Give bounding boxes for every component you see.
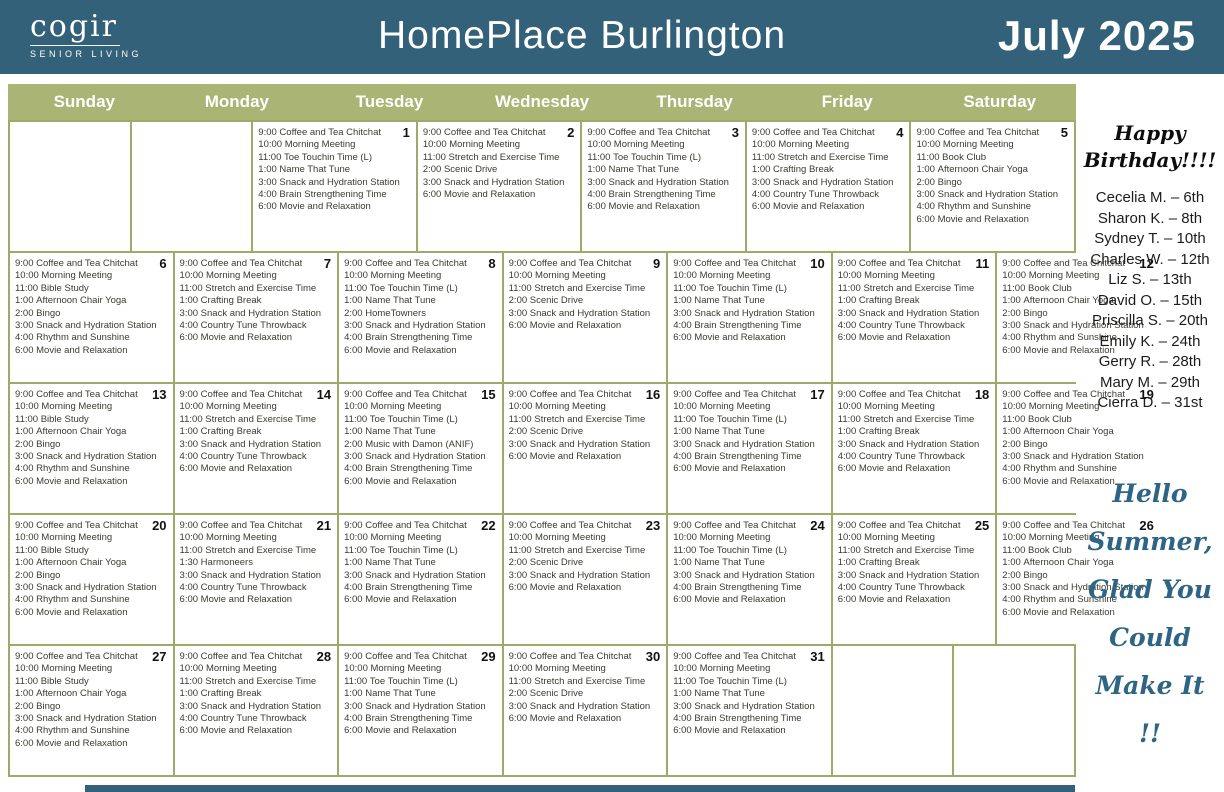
event-item: 2:00 Scenic Drive <box>423 164 565 176</box>
event-item: 1:00 Crafting Break <box>180 688 322 700</box>
event-item: 1:00 Name That Tune <box>587 164 729 176</box>
event-item: 3:00 Snack and Hydration Station <box>180 701 322 713</box>
event-time: 4:00 <box>838 451 857 462</box>
event-item: 3:00 Snack and Hydration Station <box>587 177 729 189</box>
event-name: Snack and Hydration Station <box>198 439 321 450</box>
event-name: Toe Touchin Time (L) <box>696 414 787 425</box>
day-cell-11: 119:00 Coffee and Tea Chitchat10:00 Morn… <box>833 253 998 382</box>
event-time: 6:00 <box>344 594 363 605</box>
event-item: 6:00 Movie and Relaxation <box>15 476 157 488</box>
event-name: Stretch and Exercise Time <box>861 283 975 294</box>
event-name: Movie and Relaxation <box>198 594 292 605</box>
event-item: 3:00 Snack and Hydration Station <box>258 177 400 189</box>
event-time: 10:00 <box>673 663 697 674</box>
event-name: Country Tune Throwback <box>198 582 307 593</box>
event-item: 6:00 Movie and Relaxation <box>916 214 1058 226</box>
event-time: 3:00 <box>673 308 692 319</box>
event-item: 9:00 Coffee and Tea Chitchat <box>673 520 815 532</box>
event-time: 4:00 <box>15 332 34 343</box>
event-name: Crafting Break <box>198 688 261 699</box>
event-time: 3:00 <box>673 570 692 581</box>
event-time: 4:00 <box>587 189 606 200</box>
event-item: 1:00 Name That Tune <box>344 295 486 307</box>
app-header: cogir SENIOR LIVING HomePlace Burlington… <box>0 0 1224 74</box>
day-cell-22: 229:00 Coffee and Tea Chitchat10:00 Morn… <box>339 515 504 644</box>
event-time: 11:00 <box>180 676 203 687</box>
event-item: 6:00 Movie and Relaxation <box>673 463 815 475</box>
event-item: 9:00 Coffee and Tea Chitchat <box>673 258 815 270</box>
event-time: 9:00 <box>838 520 857 531</box>
week-row: 279:00 Coffee and Tea Chitchat10:00 Morn… <box>10 644 1074 775</box>
event-item: 10:00 Morning Meeting <box>838 270 980 282</box>
event-name: Snack and Hydration Station <box>692 308 815 319</box>
event-item: 9:00 Coffee and Tea Chitchat <box>15 520 157 532</box>
event-list: 9:00 Coffee and Tea Chitchat10:00 Mornin… <box>668 646 831 740</box>
event-time: 9:00 <box>180 651 199 662</box>
event-name: Snack and Hydration Station <box>198 308 321 319</box>
event-time: 3:00 <box>15 713 34 724</box>
event-time: 1:00 <box>838 295 857 306</box>
event-name: Name That Tune <box>692 688 765 699</box>
weekday-header: Wednesday <box>466 84 619 120</box>
event-time: 10:00 <box>15 401 39 412</box>
event-name: Morning Meeting <box>940 139 1013 150</box>
event-item: 2:00 Scenic Drive <box>509 557 651 569</box>
event-name: Coffee and Tea Chitchat <box>606 127 710 138</box>
event-time: 1:00 <box>344 295 363 306</box>
event-item: 10:00 Morning Meeting <box>752 139 894 151</box>
event-time: 9:00 <box>344 520 363 531</box>
event-time: 9:00 <box>15 520 34 531</box>
event-item: 10:00 Morning Meeting <box>916 139 1058 151</box>
event-name: Bible Study <box>38 676 89 687</box>
event-time: 6:00 <box>180 594 199 605</box>
event-name: Morning Meeting <box>368 401 441 412</box>
event-name: Scenic Drive <box>441 164 497 175</box>
event-item: 4:00 Brain Strengthening Time <box>344 463 486 475</box>
event-name: Coffee and Tea Chitchat <box>856 520 960 531</box>
event-item: 11:00 Stretch and Exercise Time <box>509 545 651 557</box>
weekday-header: Thursday <box>618 84 771 120</box>
day-cell-13: 139:00 Coffee and Tea Chitchat10:00 Morn… <box>10 384 175 513</box>
event-time: 6:00 <box>15 476 34 487</box>
day-cell-2: 29:00 Coffee and Tea Chitchat10:00 Morni… <box>418 122 583 251</box>
event-item: 6:00 Movie and Relaxation <box>752 201 894 213</box>
event-item: 10:00 Morning Meeting <box>838 532 980 544</box>
day-cell-30: 309:00 Coffee and Tea Chitchat10:00 Morn… <box>504 646 669 775</box>
event-item: 10:00 Morning Meeting <box>344 401 486 413</box>
event-time: 9:00 <box>180 258 199 269</box>
event-item: 1:00 Name That Tune <box>258 164 400 176</box>
event-item: 11:00 Book Club <box>916 152 1058 164</box>
event-name: Toe Touchin Time (L) <box>696 283 787 294</box>
event-name: Brain Strengthening Time <box>363 332 473 343</box>
event-item: 4:00 Country Tune Throwback <box>838 582 980 594</box>
event-list: 9:00 Coffee and Tea Chitchat10:00 Mornin… <box>833 515 996 609</box>
event-time: 10:00 <box>838 270 862 281</box>
event-name: Snack and Hydration Station <box>34 451 157 462</box>
event-item: 3:00 Snack and Hydration Station <box>838 570 980 582</box>
event-name: Morning Meeting <box>532 532 605 543</box>
event-item: 3:00 Snack and Hydration Station <box>344 701 486 713</box>
event-name: Movie and Relaxation <box>34 607 128 618</box>
event-item: 11:00 Stretch and Exercise Time <box>423 152 565 164</box>
event-name: Coffee and Tea Chitchat <box>34 651 138 662</box>
event-name: Movie and Relaxation <box>363 594 457 605</box>
birthday-entry: Priscilla S. – 20th <box>1076 311 1224 332</box>
event-name: Afternoon Chair Yoga <box>34 295 127 306</box>
event-time: 1:30 <box>180 557 199 568</box>
event-item: 11:00 Bible Study <box>15 545 157 557</box>
event-name: Brain Strengthening Time <box>606 189 716 200</box>
event-item: 6:00 Movie and Relaxation <box>587 201 729 213</box>
day-cell-25: 259:00 Coffee and Tea Chitchat10:00 Morn… <box>833 515 998 644</box>
event-time: 4:00 <box>1002 332 1021 343</box>
event-name: Scenic Drive <box>527 426 583 437</box>
event-time: 3:00 <box>1002 451 1021 462</box>
event-item: 11:00 Stretch and Exercise Time <box>180 545 322 557</box>
event-name: Name That Tune <box>277 164 350 175</box>
event-time: 6:00 <box>1002 607 1021 618</box>
event-time: 6:00 <box>180 332 199 343</box>
event-item: 1:00 Afternoon Chair Yoga <box>15 295 157 307</box>
event-name: Coffee and Tea Chitchat <box>692 520 796 531</box>
empty-cell <box>132 122 254 251</box>
event-item: 9:00 Coffee and Tea Chitchat <box>509 651 651 663</box>
day-cell-4: 49:00 Coffee and Tea Chitchat10:00 Morni… <box>747 122 912 251</box>
event-item: 4:00 Rhythm and Sunshine <box>15 594 157 606</box>
event-time: 10:00 <box>15 663 39 674</box>
event-time: 2:00 <box>916 177 935 188</box>
event-time: 4:00 <box>15 594 34 605</box>
event-item: 3:00 Snack and Hydration Station <box>180 308 322 320</box>
birthday-entry: Sharon K. – 8th <box>1076 209 1224 230</box>
event-item: 6:00 Movie and Relaxation <box>15 738 157 750</box>
event-time: 3:00 <box>423 177 442 188</box>
event-name: Brain Strengthening Time <box>363 582 473 593</box>
event-list: 9:00 Coffee and Tea Chitchat10:00 Mornin… <box>833 384 996 478</box>
day-number: 21 <box>317 518 331 533</box>
event-name: Coffee and Tea Chitchat <box>441 127 545 138</box>
event-name: Scenic Drive <box>527 688 583 699</box>
event-time: 9:00 <box>1002 258 1021 269</box>
event-time: 9:00 <box>258 127 277 138</box>
event-name: Toe Touchin Time (L) <box>696 676 787 687</box>
event-item: 3:00 Snack and Hydration Station <box>509 308 651 320</box>
event-item: 9:00 Coffee and Tea Chitchat <box>344 520 486 532</box>
event-name: Bingo <box>34 570 61 581</box>
event-name: Name That Tune <box>363 688 436 699</box>
event-time: 4:00 <box>673 582 692 593</box>
event-name: Book Club <box>1025 283 1071 294</box>
event-time: 9:00 <box>1002 389 1021 400</box>
event-list: 9:00 Coffee and Tea Chitchat10:00 Mornin… <box>339 384 502 490</box>
event-time: 11:00 <box>587 152 610 163</box>
event-item: 1:00 Crafting Break <box>180 426 322 438</box>
event-name: Snack and Hydration Station <box>363 451 486 462</box>
event-name: Stretch and Exercise Time <box>861 414 975 425</box>
event-name: Snack and Hydration Station <box>692 439 815 450</box>
event-name: Snack and Hydration Station <box>363 701 486 712</box>
event-name: Stretch and Exercise Time <box>532 545 646 556</box>
event-item: 4:00 Country Tune Throwback <box>180 582 322 594</box>
greeting-line: Glad You <box>1076 566 1224 614</box>
event-time: 10:00 <box>180 532 204 543</box>
event-name: Morning Meeting <box>611 139 684 150</box>
event-item: 3:00 Snack and Hydration Station <box>509 439 651 451</box>
event-time: 10:00 <box>15 532 39 543</box>
event-item: 11:00 Stretch and Exercise Time <box>180 676 322 688</box>
event-item: 6:00 Movie and Relaxation <box>673 332 815 344</box>
event-item: 9:00 Coffee and Tea Chitchat <box>509 258 651 270</box>
event-item: 9:00 Coffee and Tea Chitchat <box>15 258 157 270</box>
event-name: Bingo <box>34 308 61 319</box>
event-time: 10:00 <box>838 401 862 412</box>
event-name: Movie and Relaxation <box>527 320 621 331</box>
event-item: 2:00 Scenic Drive <box>509 295 651 307</box>
event-name: Country Tune Throwback <box>198 713 307 724</box>
empty-cell <box>833 646 955 775</box>
event-item: 1:00 Afternoon Chair Yoga <box>15 688 157 700</box>
event-time: 3:00 <box>509 439 528 450</box>
event-time: 11:00 <box>1002 545 1025 556</box>
event-name: Stretch and Exercise Time <box>203 676 317 687</box>
event-time: 6:00 <box>15 607 34 618</box>
event-name: Movie and Relaxation <box>856 463 950 474</box>
event-item: 10:00 Morning Meeting <box>180 401 322 413</box>
event-time: 2:00 <box>1002 308 1021 319</box>
event-time: 1:00 <box>344 557 363 568</box>
event-name: Name That Tune <box>692 426 765 437</box>
event-item: 3:00 Snack and Hydration Station <box>838 308 980 320</box>
event-time: 9:00 <box>673 258 692 269</box>
event-item: 10:00 Morning Meeting <box>509 270 651 282</box>
event-name: Morning Meeting <box>39 401 112 412</box>
event-item: 6:00 Movie and Relaxation <box>180 725 322 737</box>
event-time: 10:00 <box>180 270 204 281</box>
event-item: 6:00 Movie and Relaxation <box>180 463 322 475</box>
event-item: 1:00 Name That Tune <box>344 688 486 700</box>
event-item: 2:00 Bingo <box>15 701 157 713</box>
event-item: 3:00 Snack and Hydration Station <box>180 570 322 582</box>
event-time: 1:00 <box>180 426 199 437</box>
event-item: 3:00 Snack and Hydration Station <box>673 439 815 451</box>
event-name: Morning Meeting <box>203 270 276 281</box>
event-item: 1:00 Name That Tune <box>344 557 486 569</box>
event-time: 4:00 <box>344 332 363 343</box>
event-time: 6:00 <box>752 201 771 212</box>
event-item: 1:00 Crafting Break <box>180 295 322 307</box>
event-name: Brain Strengthening Time <box>363 463 473 474</box>
event-time: 6:00 <box>423 189 442 200</box>
event-time: 2:00 <box>423 164 442 175</box>
event-name: Harmoneers <box>198 557 253 568</box>
event-name: Crafting Break <box>856 295 919 306</box>
event-item: 6:00 Movie and Relaxation <box>180 332 322 344</box>
event-item: 2:00 Scenic Drive <box>509 688 651 700</box>
weekday-header: Friday <box>771 84 924 120</box>
day-cell-21: 219:00 Coffee and Tea Chitchat10:00 Morn… <box>175 515 340 644</box>
event-name: Coffee and Tea Chitchat <box>198 389 302 400</box>
event-item: 3:00 Snack and Hydration Station <box>180 439 322 451</box>
event-name: Crafting Break <box>198 295 261 306</box>
event-time: 4:00 <box>180 582 199 593</box>
event-name: Scenic Drive <box>527 557 583 568</box>
event-name: Morning Meeting <box>282 139 355 150</box>
event-time: 11:00 <box>15 676 38 687</box>
event-time: 3:00 <box>344 451 363 462</box>
summer-greeting: HelloSummer,Glad YouCouldMake It!! <box>1076 470 1224 758</box>
event-item: 11:00 Stretch and Exercise Time <box>752 152 894 164</box>
event-time: 10:00 <box>1002 270 1026 281</box>
event-item: 11:00 Toe Touchin Time (L) <box>344 676 486 688</box>
event-item: 6:00 Movie and Relaxation <box>838 332 980 344</box>
event-list: 9:00 Coffee and Tea Chitchat10:00 Mornin… <box>911 122 1074 228</box>
event-time: 9:00 <box>838 258 857 269</box>
event-time: 2:00 <box>15 701 34 712</box>
day-cell-10: 109:00 Coffee and Tea Chitchat10:00 Morn… <box>668 253 833 382</box>
empty-cell <box>954 646 1074 775</box>
event-time: 1:00 <box>180 295 199 306</box>
event-item: 4:00 Rhythm and Sunshine <box>15 463 157 475</box>
event-time: 4:00 <box>838 582 857 593</box>
day-cell-8: 89:00 Coffee and Tea Chitchat10:00 Morni… <box>339 253 504 382</box>
event-item: 10:00 Morning Meeting <box>673 663 815 675</box>
event-name: Movie and Relaxation <box>692 725 786 736</box>
event-name: Morning Meeting <box>203 532 276 543</box>
event-item: 6:00 Movie and Relaxation <box>15 607 157 619</box>
event-name: Movie and Relaxation <box>770 201 864 212</box>
event-time: 9:00 <box>838 389 857 400</box>
day-cell-18: 189:00 Coffee and Tea Chitchat10:00 Morn… <box>833 384 998 513</box>
event-time: 9:00 <box>15 651 34 662</box>
event-time: 1:00 <box>752 164 771 175</box>
event-time: 9:00 <box>673 651 692 662</box>
event-time: 3:00 <box>15 582 34 593</box>
event-item: 9:00 Coffee and Tea Chitchat <box>587 127 729 139</box>
event-name: Snack and Hydration Station <box>692 701 815 712</box>
event-list: 9:00 Coffee and Tea Chitchat10:00 Mornin… <box>504 384 667 465</box>
event-time: 9:00 <box>180 520 199 531</box>
event-name: Morning Meeting <box>697 532 770 543</box>
event-name: Toe Touchin Time (L) <box>367 676 458 687</box>
greeting-line: Could <box>1076 614 1224 662</box>
event-item: 1:00 Crafting Break <box>838 426 980 438</box>
event-time: 1:00 <box>838 557 857 568</box>
event-name: Snack and Hydration Station <box>198 701 321 712</box>
event-time: 4:00 <box>1002 463 1021 474</box>
event-item: 2:00 HomeTowners <box>344 308 486 320</box>
empty-cell <box>10 122 132 251</box>
greeting-line: !! <box>1076 710 1224 758</box>
event-time: 1:00 <box>180 688 199 699</box>
event-name: HomeTowners <box>363 308 426 319</box>
event-item: 4:00 Brain Strengthening Time <box>673 320 815 332</box>
event-time: 1:00 <box>1002 426 1021 437</box>
event-item: 6:00 Movie and Relaxation <box>344 345 486 357</box>
event-time: 3:00 <box>180 308 199 319</box>
event-item: 10:00 Morning Meeting <box>15 663 157 675</box>
event-time: 4:00 <box>344 463 363 474</box>
event-time: 9:00 <box>1002 520 1021 531</box>
event-item: 4:00 Brain Strengthening Time <box>587 189 729 201</box>
event-item: 11:00 Toe Touchin Time (L) <box>344 545 486 557</box>
event-time: 3:00 <box>344 570 363 581</box>
event-name: Stretch and Exercise Time <box>861 545 975 556</box>
event-time: 1:00 <box>15 295 34 306</box>
event-time: 6:00 <box>344 476 363 487</box>
event-name: Afternoon Chair Yoga <box>935 164 1028 175</box>
event-item: 11:00 Toe Touchin Time (L) <box>587 152 729 164</box>
event-item: 4:00 Rhythm and Sunshine <box>15 332 157 344</box>
event-time: 4:00 <box>180 713 199 724</box>
event-item: 6:00 Movie and Relaxation <box>838 594 980 606</box>
event-time: 1:00 <box>15 426 34 437</box>
event-time: 2:00 <box>509 688 528 699</box>
event-time: 1:00 <box>838 426 857 437</box>
event-time: 2:00 <box>509 557 528 568</box>
event-time: 2:00 <box>15 308 34 319</box>
event-item: 6:00 Movie and Relaxation <box>673 725 815 737</box>
day-cell-27: 279:00 Coffee and Tea Chitchat10:00 Morn… <box>10 646 175 775</box>
event-item: 10:00 Morning Meeting <box>673 532 815 544</box>
event-time: 3:00 <box>180 701 199 712</box>
event-name: Snack and Hydration Station <box>363 320 486 331</box>
event-item: 11:00 Toe Touchin Time (L) <box>344 283 486 295</box>
event-name: Name That Tune <box>363 295 436 306</box>
event-item: 3:00 Snack and Hydration Station <box>673 701 815 713</box>
event-name: Rhythm and Sunshine <box>935 201 1031 212</box>
event-item: 10:00 Morning Meeting <box>180 663 322 675</box>
event-name: Bible Study <box>38 283 89 294</box>
event-item: 6:00 Movie and Relaxation <box>509 582 651 594</box>
event-name: Movie and Relaxation <box>692 332 786 343</box>
event-time: 3:00 <box>180 439 199 450</box>
event-name: Movie and Relaxation <box>527 713 621 724</box>
event-time: 6:00 <box>838 332 857 343</box>
event-time: 3:00 <box>916 189 935 200</box>
event-name: Coffee and Tea Chitchat <box>692 651 796 662</box>
event-time: 1:00 <box>15 557 34 568</box>
event-name: Coffee and Tea Chitchat <box>770 127 874 138</box>
event-time: 10:00 <box>258 139 282 150</box>
day-number: 11 <box>976 256 990 271</box>
event-name: Movie and Relaxation <box>441 189 535 200</box>
event-time: 6:00 <box>1002 476 1021 487</box>
event-time: 11:00 <box>344 545 367 556</box>
event-time: 10:00 <box>673 401 697 412</box>
event-time: 4:00 <box>673 320 692 331</box>
event-item: 11:00 Stretch and Exercise Time <box>838 283 980 295</box>
event-name: Movie and Relaxation <box>527 582 621 593</box>
event-item: 11:00 Stretch and Exercise Time <box>509 676 651 688</box>
event-item: 9:00 Coffee and Tea Chitchat <box>344 258 486 270</box>
week-row: 139:00 Coffee and Tea Chitchat10:00 Morn… <box>10 382 1074 513</box>
day-number: 28 <box>317 649 331 664</box>
event-item: 10:00 Morning Meeting <box>15 401 157 413</box>
event-time: 11:00 <box>509 676 532 687</box>
event-list: 9:00 Coffee and Tea Chitchat10:00 Mornin… <box>833 253 996 347</box>
event-name: Snack and Hydration Station <box>856 439 979 450</box>
event-name: Brain Strengthening Time <box>692 582 802 593</box>
event-time: 4:00 <box>916 201 935 212</box>
event-time: 10:00 <box>673 532 697 543</box>
event-time: 9:00 <box>509 389 528 400</box>
event-name: Afternoon Chair Yoga <box>34 688 127 699</box>
event-time: 11:00 <box>838 545 861 556</box>
event-time: 11:00 <box>344 283 367 294</box>
event-name: Stretch and Exercise Time <box>532 283 646 294</box>
